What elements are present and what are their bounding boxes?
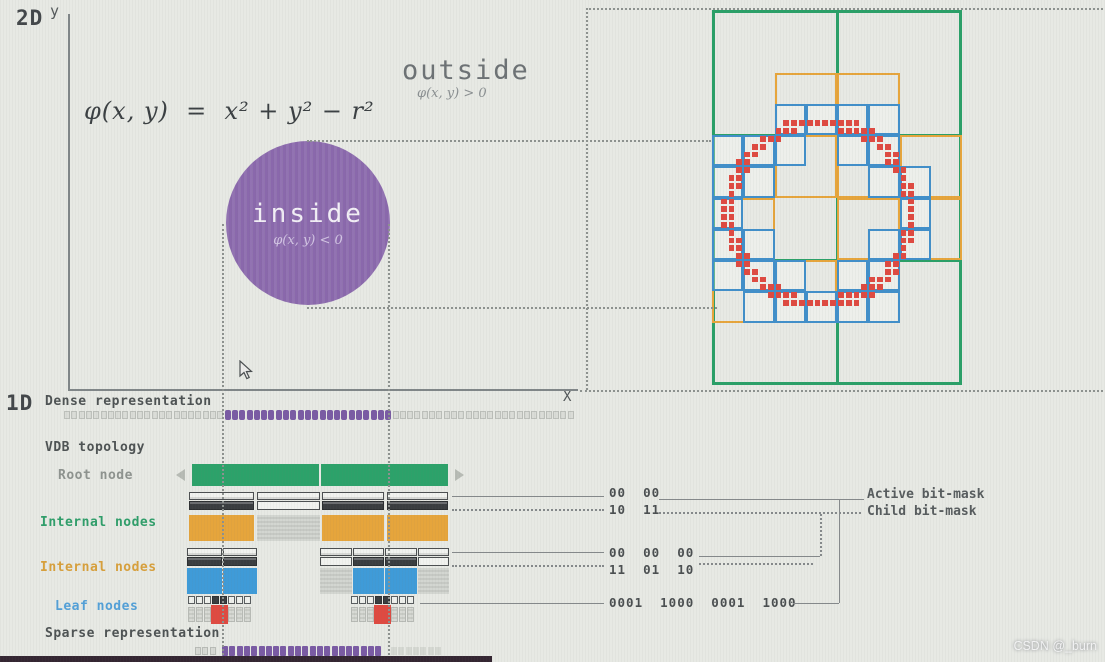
dense-cell — [444, 411, 450, 419]
dense-cell-active — [320, 410, 326, 420]
blue-leaf-box — [806, 291, 837, 322]
dense-cell-active — [247, 410, 253, 420]
dense-cell — [414, 411, 420, 419]
label-1d: 1D — [6, 391, 33, 415]
dense-cell — [487, 411, 493, 419]
red-voxel — [729, 191, 735, 197]
level1-active-mask-values: 00 00 — [609, 485, 660, 500]
connector-line — [452, 552, 604, 553]
dense-cell-active — [349, 410, 355, 420]
red-voxel — [869, 277, 875, 283]
x-axis — [68, 389, 578, 391]
red-voxel — [729, 183, 735, 189]
sparse-cell-faint — [435, 647, 441, 655]
red-voxel — [744, 253, 750, 259]
dense-cell-active — [239, 410, 245, 420]
leaf-mask-cell — [407, 596, 414, 604]
dense-cell-active — [225, 410, 231, 420]
leaf-voxel — [244, 607, 251, 622]
red-voxel — [791, 128, 797, 134]
red-voxel — [885, 269, 891, 275]
sparse-cell-active — [324, 646, 330, 656]
red-voxel — [744, 159, 750, 165]
internal-level2-bar-segment — [353, 568, 384, 594]
dense-cell-active — [261, 410, 267, 420]
red-voxel — [838, 128, 844, 134]
dense-cell — [64, 411, 70, 419]
y-axis-label: y — [50, 2, 59, 20]
internal-level1-bar-segment — [322, 515, 384, 541]
sparse-cell-active — [375, 646, 381, 656]
inside-label: inside — [226, 199, 390, 229]
red-voxel — [736, 175, 742, 181]
dense-cell — [429, 411, 435, 419]
red-voxel — [885, 144, 891, 150]
leaf-mask-cell — [391, 596, 398, 604]
root-right-arrow — [455, 469, 464, 481]
red-voxel — [908, 238, 914, 244]
dense-cell — [195, 411, 201, 419]
red-voxel — [783, 128, 789, 134]
internal-level1-child-mask-cell — [257, 501, 320, 510]
guide-line — [307, 140, 711, 142]
dense-cell — [451, 411, 457, 419]
dense-cell-active — [232, 410, 238, 420]
connector-line — [420, 603, 604, 604]
red-voxel — [729, 238, 735, 244]
red-voxel — [846, 300, 852, 306]
leaf-mask-cell — [244, 596, 251, 604]
leaf-voxel — [188, 607, 195, 622]
connector-line — [839, 499, 840, 603]
dense-representation-label: Dense representation — [45, 394, 212, 409]
dense-cell — [159, 411, 165, 419]
red-voxel — [854, 292, 860, 298]
dense-cell — [539, 411, 545, 419]
red-voxel — [752, 269, 758, 275]
leaf-mask-values: 0001 1000 0001 1000 — [609, 595, 797, 610]
red-voxel — [729, 230, 735, 236]
outside-label: outside — [402, 55, 530, 86]
internal-level2-child-mask-cell — [353, 557, 384, 566]
red-voxel — [783, 292, 789, 298]
blue-leaf-box — [900, 198, 931, 229]
dense-cell — [400, 411, 406, 419]
red-voxel — [729, 214, 735, 220]
red-voxel — [893, 152, 899, 158]
red-voxel — [815, 120, 821, 126]
dense-cell — [560, 411, 566, 419]
red-voxel — [830, 120, 836, 126]
label-2d: 2D — [16, 6, 43, 30]
red-voxel — [901, 175, 907, 181]
red-voxel — [729, 222, 735, 228]
red-voxel — [869, 128, 875, 134]
internal-level1-active-mask-cell — [322, 492, 384, 500]
connector-line — [452, 565, 604, 567]
dense-cell — [553, 411, 559, 419]
dense-cell — [174, 411, 180, 419]
red-voxel — [901, 167, 907, 173]
leaf-mask-cell — [367, 596, 374, 604]
red-voxel — [729, 245, 735, 251]
red-voxel — [776, 136, 782, 142]
sparse-cell-faint — [428, 647, 434, 655]
mouse-cursor — [238, 360, 254, 384]
internal-level2-active-mask-cell — [223, 548, 257, 556]
level2-child-mask-values: 11 01 10 — [609, 562, 694, 577]
y-axis — [68, 14, 70, 389]
dense-cell-active — [341, 410, 347, 420]
red-voxel — [729, 199, 735, 205]
root-left-arrow — [176, 469, 185, 481]
root-node-bar — [321, 464, 448, 486]
red-voxel — [736, 253, 742, 259]
red-voxel — [721, 199, 727, 205]
internal-level1-active-mask-cell — [387, 492, 448, 500]
blue-leaf-box — [806, 104, 837, 135]
dense-cell — [480, 411, 486, 419]
red-voxel — [846, 292, 852, 298]
dense-cell — [458, 411, 464, 419]
internal-level1-active-mask-cell — [257, 492, 320, 500]
red-voxel — [744, 152, 750, 158]
red-voxel — [893, 167, 899, 173]
dense-cell — [466, 411, 472, 419]
leaf-mask-cell — [204, 596, 211, 604]
red-voxel — [861, 284, 867, 290]
internal-level2-child-mask-cell — [187, 557, 222, 566]
connector-line — [793, 603, 839, 604]
guide-line — [307, 307, 717, 309]
red-voxel — [729, 206, 735, 212]
blue-leaf-box — [712, 198, 743, 229]
red-voxel — [783, 120, 789, 126]
red-voxel — [838, 292, 844, 298]
sparse-cell-active — [237, 646, 243, 656]
internal-level2-child-mask-cell — [418, 557, 449, 566]
dense-cell — [407, 411, 413, 419]
dense-cell-active — [334, 410, 340, 420]
red-voxel — [783, 300, 789, 306]
dense-cell-active — [312, 410, 318, 420]
dense-cell — [86, 411, 92, 419]
red-voxel — [901, 245, 907, 251]
root-node-label: Root node — [58, 468, 133, 483]
leaf-mask-cell — [351, 596, 358, 604]
red-voxel — [799, 300, 805, 306]
connector-line — [452, 496, 604, 497]
sparse-cell — [210, 647, 216, 655]
sparse-cell-active — [302, 646, 308, 656]
red-voxel — [869, 284, 875, 290]
dense-cell — [79, 411, 85, 419]
sparse-cell-active — [266, 646, 272, 656]
dense-cell — [166, 411, 172, 419]
sparse-cell-active — [368, 646, 374, 656]
red-voxel — [752, 152, 758, 158]
red-voxel — [744, 167, 750, 173]
dense-cell — [422, 411, 428, 419]
red-voxel — [760, 144, 766, 150]
red-voxel — [838, 300, 844, 306]
slide-photo: 2D y φ(x, y) = x² + y² − r² outside φ(x,… — [0, 0, 1105, 662]
internal-level2-child-mask-cell — [320, 557, 352, 566]
dense-cell — [108, 411, 114, 419]
leaf-voxel — [359, 607, 366, 622]
internal-nodes-level2-label: Internal nodes — [40, 560, 157, 575]
red-voxel — [791, 120, 797, 126]
internal-level2-bar-segment — [320, 568, 352, 594]
dense-cell — [101, 411, 107, 419]
leaf-mask-cell — [196, 596, 203, 604]
sparse-cell-faint — [391, 647, 397, 655]
dense-cell — [137, 411, 143, 419]
dense-cell-active — [356, 410, 362, 420]
red-voxel — [760, 136, 766, 142]
photo-edge-bar — [0, 656, 492, 662]
red-voxel — [885, 261, 891, 267]
sparse-cell-active — [244, 646, 250, 656]
internal-nodes-level1-label: Internal nodes — [40, 515, 157, 530]
red-voxel — [776, 292, 782, 298]
red-voxel — [908, 191, 914, 197]
dense-cell — [71, 411, 77, 419]
leaf-mask-cell — [188, 596, 195, 604]
red-voxel — [822, 120, 828, 126]
dense-cell — [152, 411, 158, 419]
red-voxel — [877, 277, 883, 283]
dense-cell-active — [327, 410, 333, 420]
red-voxel — [869, 136, 875, 142]
red-voxel — [854, 120, 860, 126]
internal-level2-bar-segment — [187, 568, 222, 594]
sparse-cell-active — [310, 646, 316, 656]
leaf-mask-cell — [399, 596, 406, 604]
connector-line — [452, 509, 604, 511]
leaf-mask-cell — [236, 596, 243, 604]
red-voxel — [721, 214, 727, 220]
sparse-cell-faint — [406, 647, 412, 655]
red-voxel — [752, 277, 758, 283]
watermark: CSDN @_burn — [1013, 639, 1097, 653]
leaf-voxel — [367, 607, 374, 622]
dense-cell — [509, 411, 515, 419]
red-voxel — [760, 277, 766, 283]
sparse-cell-active — [251, 646, 257, 656]
dense-cell — [188, 411, 194, 419]
red-voxel — [776, 128, 782, 134]
red-voxel — [721, 222, 727, 228]
dense-cell — [531, 411, 537, 419]
internal-level2-active-mask-cell — [187, 548, 222, 556]
equation: φ(x, y) = x² + y² − r² — [84, 97, 375, 125]
level2-active-mask-values: 00 00 00 — [609, 545, 694, 560]
sparse-cell-active — [353, 646, 359, 656]
guide-line — [388, 224, 390, 655]
sparse-cell-active — [288, 646, 294, 656]
dense-cell-active — [305, 410, 311, 420]
internal-level2-bar-segment — [418, 568, 449, 594]
red-voxel — [861, 136, 867, 142]
inside-circle: inside φ(x, y) < 0 — [226, 141, 390, 305]
sparse-cell-faint — [420, 647, 426, 655]
dense-cell-active — [268, 410, 274, 420]
red-voxel — [846, 128, 852, 134]
red-voxel — [736, 245, 742, 251]
internal-level2-active-mask-cell — [353, 548, 384, 556]
sparse-cell-active — [280, 646, 286, 656]
leaf-voxel — [399, 607, 406, 622]
leaf-voxel — [407, 607, 414, 622]
red-voxel — [893, 261, 899, 267]
red-voxel — [744, 261, 750, 267]
leaf-nodes-label: Leaf nodes — [55, 599, 138, 614]
active-bitmask-label: Active bit-mask — [867, 487, 984, 502]
sparse-cell-faint — [398, 647, 404, 655]
leaf-mask-cell — [359, 596, 366, 604]
internal-level1-bar-segment — [387, 515, 448, 541]
leaf-voxel — [391, 607, 398, 622]
red-voxel — [846, 120, 852, 126]
quadtree-grid — [712, 10, 962, 385]
dense-cell — [203, 411, 209, 419]
internal-level2-active-mask-cell — [418, 548, 449, 556]
red-voxel — [901, 253, 907, 259]
dense-cell-active — [298, 410, 304, 420]
dense-cell — [181, 411, 187, 419]
dense-cell-active — [283, 410, 289, 420]
connector-line — [659, 499, 864, 500]
dense-cell-active — [276, 410, 282, 420]
red-voxel — [885, 152, 891, 158]
outside-condition: φ(x, y) > 0 — [417, 86, 487, 101]
red-voxel — [885, 277, 891, 283]
red-voxel — [877, 284, 883, 290]
guide-line — [586, 8, 1103, 10]
dense-cell — [502, 411, 508, 419]
red-voxel — [736, 159, 742, 165]
red-voxel — [768, 136, 774, 142]
sparse-cell-faint — [413, 647, 419, 655]
red-voxel — [721, 206, 727, 212]
dense-cell — [115, 411, 121, 419]
dense-cell — [393, 411, 399, 419]
sparse-cell — [202, 647, 208, 655]
leaf-mask-cell — [375, 596, 382, 604]
leaf-mask-cell — [212, 596, 219, 604]
sparse-cell-active — [317, 646, 323, 656]
red-voxel — [760, 284, 766, 290]
dense-cell-active — [363, 410, 369, 420]
red-voxel — [877, 136, 883, 142]
leaf-voxel — [228, 607, 235, 622]
sparse-cell-active — [361, 646, 367, 656]
connector-line — [699, 563, 813, 565]
level1-child-mask-values: 10 11 — [609, 502, 660, 517]
dense-cell-active — [371, 410, 377, 420]
red-voxel — [807, 300, 813, 306]
red-voxel — [791, 300, 797, 306]
connector-line — [820, 514, 822, 556]
guide-line — [222, 224, 224, 655]
dense-cell-active — [254, 410, 260, 420]
red-voxel — [822, 300, 828, 306]
red-voxel — [838, 120, 844, 126]
red-voxel — [901, 191, 907, 197]
red-voxel — [736, 238, 742, 244]
leaf-mask-cell — [228, 596, 235, 604]
red-voxel — [791, 292, 797, 298]
sparse-cell-active — [259, 646, 265, 656]
red-voxel — [830, 300, 836, 306]
dense-cell-active — [290, 410, 296, 420]
x-axis-label: X — [563, 389, 571, 405]
red-voxel — [861, 292, 867, 298]
red-voxel — [908, 222, 914, 228]
root-node-bar — [192, 464, 319, 486]
leaf-voxel — [204, 607, 211, 622]
red-voxel — [893, 159, 899, 165]
connector-line — [659, 512, 861, 514]
sparse-cell — [195, 647, 201, 655]
internal-level1-child-mask-cell — [387, 501, 448, 510]
internal-level2-child-mask-cell — [223, 557, 257, 566]
dense-cell — [524, 411, 530, 419]
red-voxel — [736, 183, 742, 189]
red-voxel — [908, 230, 914, 236]
sparse-cell-active — [273, 646, 279, 656]
red-voxel — [901, 238, 907, 244]
red-voxel — [736, 167, 742, 173]
red-voxel — [869, 292, 875, 298]
internal-level1-child-mask-cell — [322, 501, 384, 510]
sparse-representation-label: Sparse representation — [45, 626, 220, 641]
sparse-cell-active — [332, 646, 338, 656]
dense-cell — [546, 411, 552, 419]
leaf-voxel — [351, 607, 358, 622]
red-voxel — [877, 144, 883, 150]
red-voxel — [885, 159, 891, 165]
dense-cell — [568, 411, 574, 419]
red-voxel — [893, 253, 899, 259]
red-voxel — [744, 269, 750, 275]
red-voxel — [776, 284, 782, 290]
red-voxel — [736, 261, 742, 267]
leaf-voxel — [196, 607, 203, 622]
red-voxel — [729, 175, 735, 181]
red-voxel — [768, 284, 774, 290]
red-voxel — [908, 199, 914, 205]
leaf-voxel — [236, 607, 243, 622]
internal-level2-active-mask-cell — [320, 548, 352, 556]
sparse-cell-active — [339, 646, 345, 656]
dense-cell — [144, 411, 150, 419]
dense-cell — [210, 411, 216, 419]
red-voxel — [901, 183, 907, 189]
guide-line — [580, 390, 1103, 392]
inside-condition: φ(x, y) < 0 — [226, 233, 390, 248]
dense-cell — [122, 411, 128, 419]
red-voxel — [807, 120, 813, 126]
red-voxel — [861, 128, 867, 134]
red-voxel — [908, 206, 914, 212]
sparse-cell-active — [295, 646, 301, 656]
dense-cell — [495, 411, 501, 419]
red-voxel — [799, 120, 805, 126]
red-voxel — [854, 300, 860, 306]
red-voxel — [908, 183, 914, 189]
